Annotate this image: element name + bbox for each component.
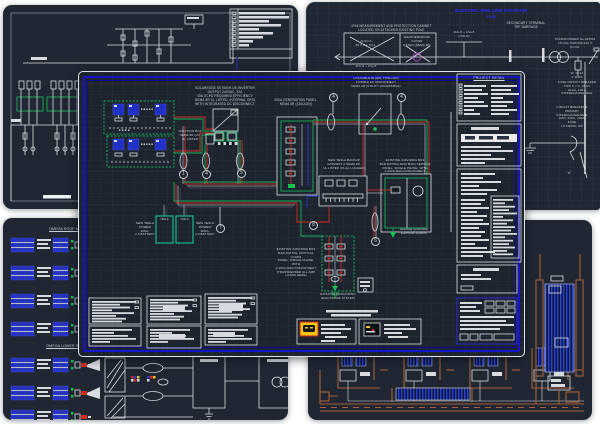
right-column-tables bbox=[457, 74, 521, 344]
conduit-tag: 1 bbox=[179, 170, 188, 179]
pv-array-group-1 bbox=[104, 101, 174, 134]
ground-symbol bbox=[524, 143, 536, 153]
panel-box bbox=[193, 354, 225, 408]
terminal-tick bbox=[509, 50, 512, 62]
gateway-note: NEW TESLA BACKUP GATEWAY 2 NEMA 3R, UL L… bbox=[322, 159, 366, 170]
service-panel-note: EXISTING 240V/200A BUS BAR RATING 200A M… bbox=[379, 159, 431, 174]
generation-panel-note: 200A GENERATION PANEL, NEMA 3R (120/240V… bbox=[272, 98, 320, 106]
pv-array-group-2 bbox=[107, 136, 174, 167]
ground-dot bbox=[373, 127, 377, 131]
powerwall-brand-label: TESLA bbox=[178, 218, 191, 221]
grounding-note: (Existing Grounding Electrode System) bbox=[395, 228, 433, 236]
ac-disconnect-note: LOCKABLE BLADE TYPE NON FUSIBLE AC DISCO… bbox=[351, 77, 401, 88]
secondary-terminal-note: SECONDARY TERMINAL TRF BARRAGE bbox=[496, 21, 556, 29]
conduit-ellipse bbox=[143, 392, 163, 401]
upper-schematic bbox=[23, 15, 233, 63]
powerwall-brand-label: TESLA bbox=[158, 218, 171, 221]
legend-table bbox=[230, 9, 292, 58]
fuse-breaker-note: FUSE CIRCUIT BREAKER TIPO K 7 A, 15 KV 2… bbox=[554, 81, 600, 96]
plan-set-montage: ELECTRIC ONE LINE DIAGRAM 1:100 IP44 MEA… bbox=[0, 0, 600, 424]
conduit-ellipse bbox=[203, 153, 210, 169]
fuse-symbol bbox=[575, 61, 581, 70]
conduit-tag: 8 bbox=[309, 221, 318, 230]
tall-roof-array bbox=[536, 254, 583, 404]
project-detail-header: PROJECT DETAIL bbox=[459, 76, 519, 80]
existing-ground-note: EXISTING GROUNDING ELECTRODE SYSTEM bbox=[316, 293, 360, 301]
junction-box bbox=[206, 134, 214, 144]
meter-label-glyph bbox=[364, 323, 380, 336]
generation-panel bbox=[277, 117, 317, 195]
backup-gateway bbox=[307, 176, 383, 240]
left-schematic bbox=[11, 81, 83, 201]
detail-mark-a: "A" bbox=[561, 171, 577, 175]
fuse-note: W, 10 kA V IRON bbox=[564, 72, 590, 80]
inverter bbox=[206, 109, 238, 145]
conduit-tag: 4 bbox=[397, 93, 406, 102]
feeder-label: 2No.8 + 1No.8 bbox=[346, 65, 386, 69]
circuit-breakers-note: CIRCUIT BREAKERS PRIMARY INTERCHANGEABLE… bbox=[549, 106, 595, 129]
roof-equipment-pad bbox=[566, 392, 579, 402]
breaker-hook bbox=[570, 136, 577, 160]
cabinet-note: IP44 MEASUREMENT AND PROTECTION CABINET … bbox=[334, 24, 449, 32]
ground-arrow bbox=[332, 286, 338, 291]
conduit-tag: 4 bbox=[329, 93, 338, 102]
conduit-ellipse bbox=[143, 364, 163, 373]
transformer-box bbox=[259, 354, 288, 408]
conduit-tag: 6 bbox=[371, 237, 380, 246]
ground-symbol bbox=[205, 408, 213, 419]
drawing-title: ELECTRIC ONE LINE DIAGRAM bbox=[431, 8, 551, 14]
transformer-note: TRANSFORMER No.325501 15 kVA-7600/240-12… bbox=[551, 38, 599, 49]
warning-placard bbox=[300, 322, 318, 336]
note-tables bbox=[89, 294, 257, 348]
drawing-scale: 1:100 bbox=[431, 15, 551, 19]
critical-loads-panel bbox=[322, 236, 373, 297]
conduit-tag: 7 bbox=[216, 224, 225, 233]
wiring-linework bbox=[79, 72, 524, 356]
meter-symbol bbox=[413, 186, 423, 196]
critical-loads-note: EXISTING 240V/100A BUS BAR RATING, CRITI… bbox=[275, 248, 317, 278]
feed-funnel-2 bbox=[87, 387, 100, 399]
cabinet-sub-note: ALSO A 50 T, 6A, POL. bbox=[351, 40, 381, 48]
powerwall-right-note: NEW TESLA POWER WALL 2.0 BATTERY bbox=[195, 222, 215, 237]
junction-box-note: JUNCTION BOX NEMA 3R (LV) UL LISTED bbox=[175, 130, 205, 141]
pv-strip-array bbox=[392, 388, 472, 402]
conduit-ellipse bbox=[180, 153, 187, 169]
feed-funnel-1 bbox=[87, 359, 100, 371]
detail-boxes bbox=[297, 310, 421, 344]
powerwall-left-note: NEW TESLA POWER WALL 2.0 BATTERY bbox=[135, 222, 155, 237]
meter-cluster bbox=[131, 376, 168, 385]
transformer-symbol bbox=[272, 377, 282, 387]
string-rows-group-b bbox=[11, 358, 91, 420]
feeder-label-2: 2No.8 + 1No.8 (ITALO) bbox=[446, 31, 482, 39]
weatherproof-note: WEATHERPROOF COVER RATED (NEMA 3R) bbox=[398, 36, 436, 47]
sheet-main-wiring-diagram: SOLAREDGE SE7600H-US INVERTER OUTPUT 240… bbox=[78, 71, 525, 357]
conduit-ellipse bbox=[372, 213, 378, 231]
conduit-tag: 4 bbox=[202, 170, 211, 179]
conduit-tag: 5 bbox=[237, 169, 246, 178]
inverter-note: SOLAREDGE SE7600H-US INVERTER OUTPUT 240… bbox=[189, 86, 261, 106]
